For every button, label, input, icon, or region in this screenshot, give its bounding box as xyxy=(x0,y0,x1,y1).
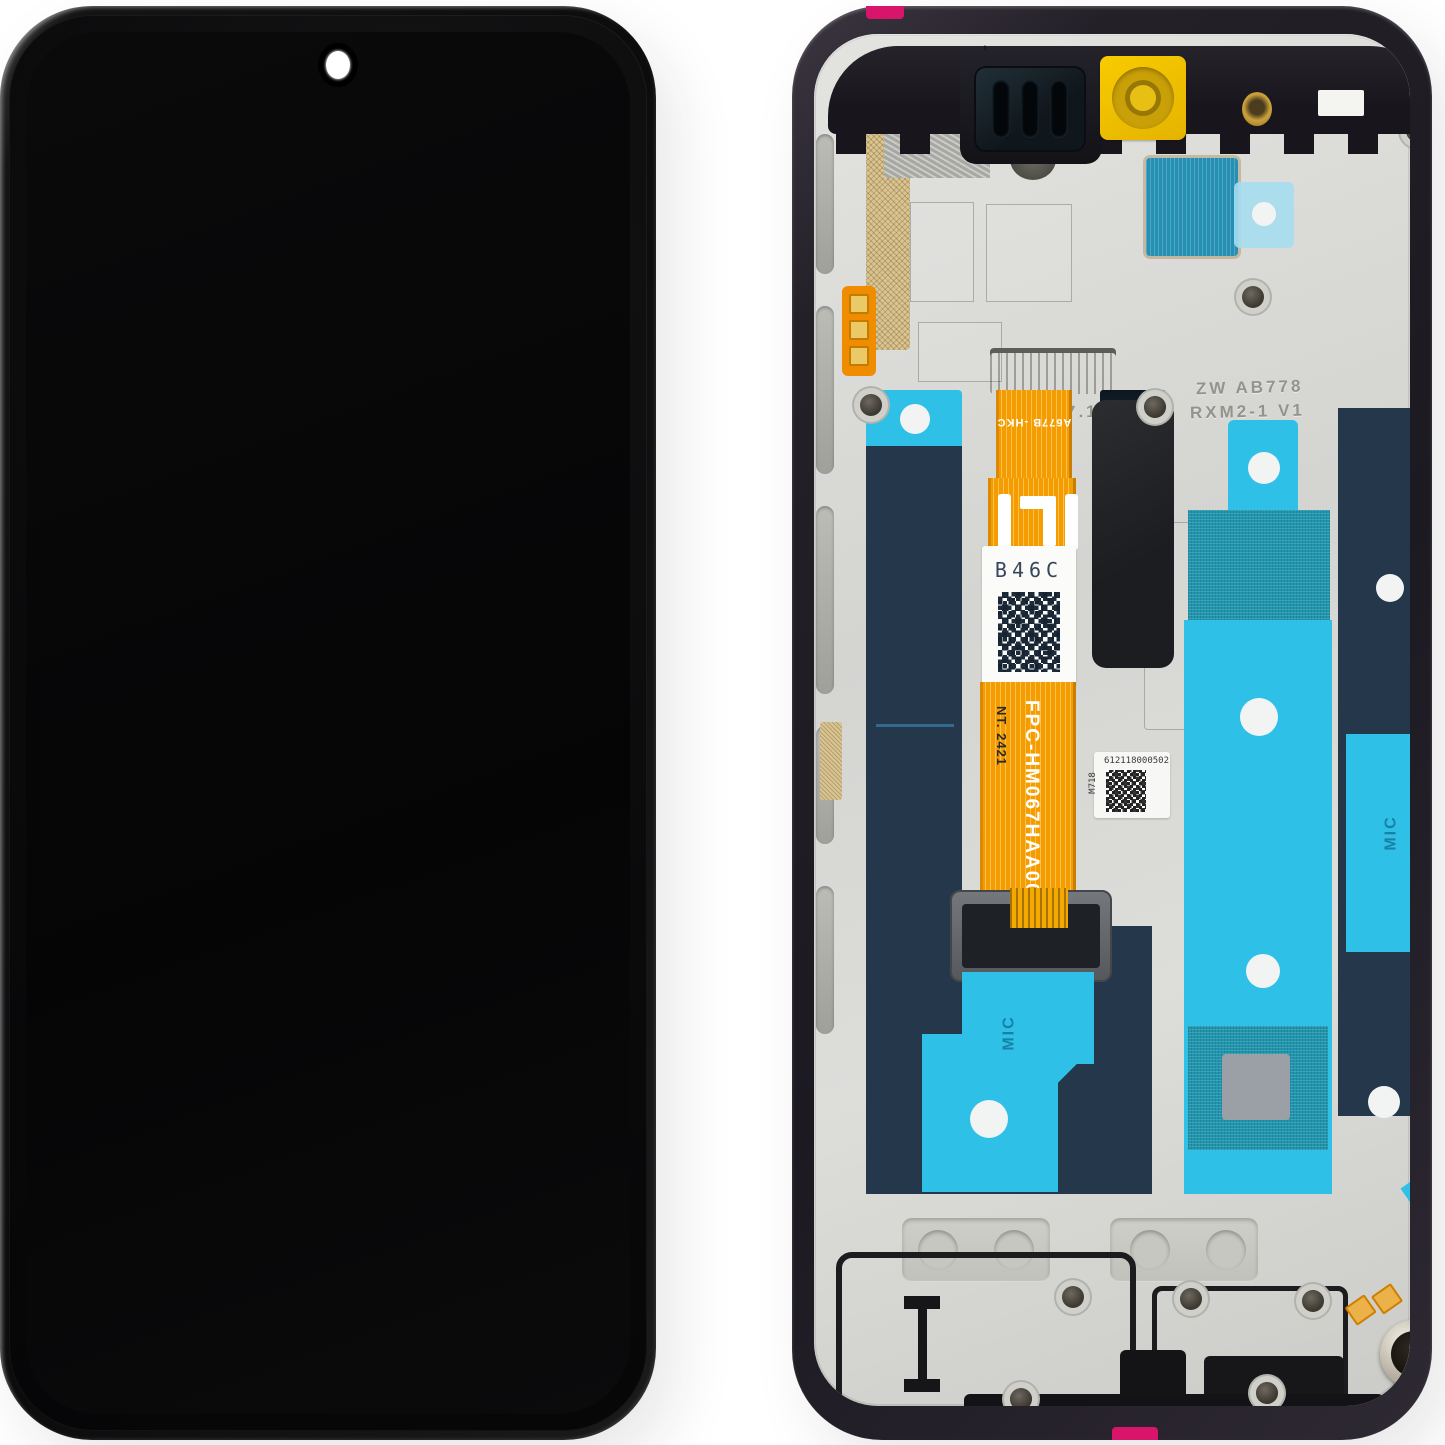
camera-ring xyxy=(1112,67,1174,129)
punch-hole-camera-ring xyxy=(318,43,358,87)
print-bar xyxy=(1065,494,1078,550)
camera-ring-inner xyxy=(1125,80,1161,116)
antenna-mesh-pad xyxy=(820,722,842,800)
white-sticker xyxy=(1318,90,1364,116)
gold-contact-pad xyxy=(849,320,869,340)
rail-slot xyxy=(816,886,834,1034)
tab-hole xyxy=(1252,202,1276,226)
pocket-hole xyxy=(1206,1230,1246,1270)
rail-slot xyxy=(816,506,834,694)
adhesive-hole xyxy=(1240,698,1278,736)
front-camera-protector xyxy=(1100,56,1186,140)
gold-contact-pad xyxy=(849,294,869,314)
screw-hole xyxy=(1180,1288,1202,1310)
screw-hole xyxy=(1242,286,1264,308)
i-beam-cutout xyxy=(918,1296,927,1392)
rail-slot xyxy=(816,306,834,474)
product-photo-stage: 7.1-S ZW AB778 RXM2-1 V1 xyxy=(0,0,1445,1445)
display-panel-off xyxy=(26,32,630,1414)
alignment-print xyxy=(998,494,1078,552)
serial-label: 612118000502 M718 xyxy=(1094,752,1170,818)
stamped-code-line1: ZW AB778 xyxy=(1196,377,1304,400)
adhesive-hole xyxy=(1376,574,1404,602)
screw-hole xyxy=(1062,1286,1084,1308)
side-contact-flex xyxy=(842,286,876,376)
i-beam-cutout xyxy=(904,1379,940,1392)
display-assembly-front xyxy=(0,6,656,1440)
mesh-patch-teal xyxy=(1188,510,1330,634)
screw-hole xyxy=(1256,1382,1278,1404)
adhesive-hole xyxy=(900,404,930,434)
vibration-motor-core xyxy=(1391,1331,1410,1377)
screw-hole xyxy=(1010,1388,1032,1406)
print-bar xyxy=(998,494,1011,550)
screw-hole xyxy=(1144,396,1166,418)
screw-hole xyxy=(1302,1290,1324,1312)
etched-outline xyxy=(986,204,1072,302)
scratch-mark xyxy=(876,724,954,727)
adhesive-sliver xyxy=(1401,1176,1410,1210)
mic-marking: MIC xyxy=(1383,815,1401,850)
pink-pull-tab-top xyxy=(866,6,904,19)
front-glass xyxy=(9,15,647,1431)
mic-marking: MIC xyxy=(1001,1015,1019,1050)
metal-backplate: 7.1-S ZW AB778 RXM2-1 V1 xyxy=(814,34,1410,1406)
lcd-flex-connector-shield xyxy=(990,348,1116,394)
adhesive-hole xyxy=(1248,452,1280,484)
adhesive-hole xyxy=(1368,1086,1400,1118)
pocket-hole xyxy=(1130,1230,1170,1270)
datamatrix-code xyxy=(1106,770,1146,812)
qr-label: B46C xyxy=(982,546,1076,686)
qr-code xyxy=(998,592,1060,672)
mesh-patch-teal xyxy=(1188,1026,1328,1150)
earpiece-slot xyxy=(992,80,1010,138)
flex-end-contacts xyxy=(1010,888,1068,928)
punch-hole-camera-cutout xyxy=(326,51,350,79)
graphite-pad xyxy=(1092,400,1174,668)
flex-marking-nt: NT. 2421 xyxy=(994,706,1009,826)
pink-pull-tab-bottom xyxy=(1112,1427,1158,1440)
connector-mesh-cover xyxy=(1146,158,1238,256)
etched-outline xyxy=(910,202,974,302)
screw-hole xyxy=(860,394,882,416)
adhesive-hole xyxy=(970,1100,1008,1138)
serial-number: 612118000502 xyxy=(1104,756,1170,766)
print-corner xyxy=(1043,496,1056,546)
adhesive-hole xyxy=(1246,954,1280,988)
speaker-gasket-outline xyxy=(836,1252,1136,1406)
rail-slot xyxy=(816,134,834,274)
gold-contact-pad xyxy=(849,346,869,366)
flex-marking: A677B -HKC xyxy=(996,416,1072,428)
earpiece-housing xyxy=(960,50,1102,164)
earpiece-slot xyxy=(1021,80,1039,138)
earpiece-slot xyxy=(1050,80,1068,138)
earpiece-speaker xyxy=(974,66,1086,152)
serial-side-code: M718 xyxy=(1088,772,1098,794)
display-assembly-rear: 7.1-S ZW AB778 RXM2-1 V1 xyxy=(792,6,1432,1440)
board-connector xyxy=(950,890,1112,982)
gray-pad xyxy=(1222,1054,1290,1120)
gold-grommet xyxy=(1242,92,1272,126)
qr-label-code: B46C xyxy=(982,558,1076,582)
